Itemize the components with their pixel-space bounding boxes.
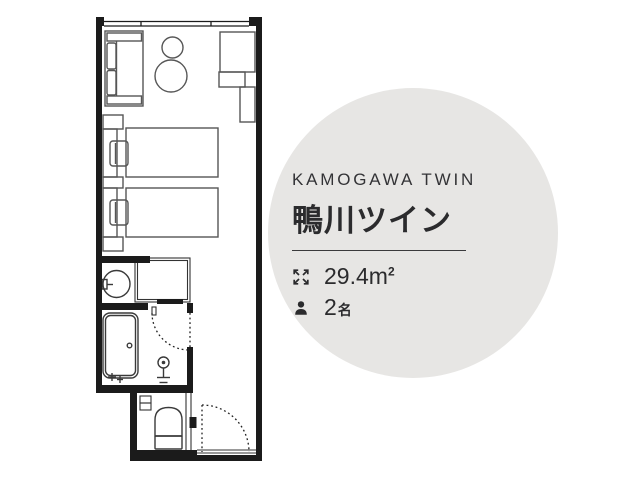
round-table: [155, 60, 187, 92]
room-detail-view: KAMOGAWA TWIN 鴨川ツイン 29.4m2: [0, 0, 640, 480]
shower: [157, 357, 170, 383]
side-table: [162, 37, 183, 58]
washbasin: [102, 271, 130, 298]
bathtub: [103, 313, 138, 383]
walls: [96, 17, 262, 461]
desk-unit: [219, 32, 255, 122]
entrance-door: [197, 405, 256, 453]
bathroom-door: [152, 307, 190, 350]
area-row: 29.4m2: [292, 264, 542, 289]
toilet-shelf: [140, 403, 151, 410]
toilet-shelf: [140, 396, 151, 403]
capacity-row: 2名: [292, 295, 542, 320]
sofa: [105, 31, 143, 106]
twin-beds: [103, 115, 218, 251]
spec-list: 29.4m2 2名: [292, 264, 542, 321]
hanger-rail: [157, 299, 183, 304]
room-info: KAMOGAWA TWIN 鴨川ツイン 29.4m2: [292, 170, 542, 321]
person-icon: [292, 300, 310, 316]
toilet-door: [186, 393, 197, 450]
bed-1: [126, 128, 218, 177]
room-area: 29.4m2: [324, 264, 395, 289]
room-name-ja: 鴨川ツイン: [292, 195, 542, 240]
nightstand: [103, 177, 123, 188]
window: [104, 22, 249, 27]
bed-2: [126, 188, 218, 237]
toilet: [140, 396, 182, 449]
room-name-en: KAMOGAWA TWIN: [292, 170, 542, 190]
headboard-step: [103, 115, 123, 129]
room-capacity: 2名: [324, 295, 352, 320]
divider: [292, 250, 466, 251]
headboard-step: [103, 237, 123, 251]
expand-icon: [292, 268, 310, 286]
closet: [135, 258, 190, 304]
